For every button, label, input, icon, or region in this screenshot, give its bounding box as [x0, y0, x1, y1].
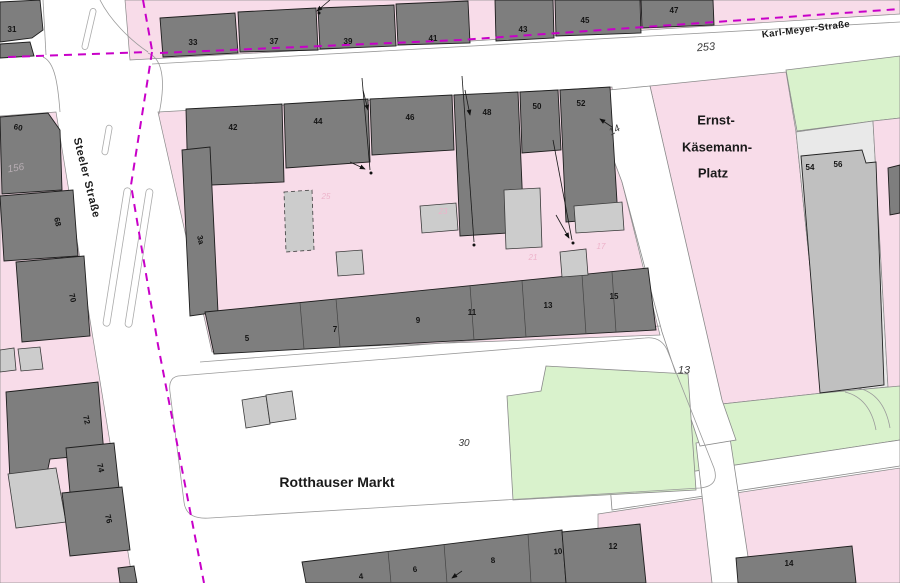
curb-junction-right [148, 53, 162, 114]
building-light-west [8, 468, 66, 528]
label-bld-39: 39 [344, 38, 353, 46]
label-bld-13: 13 [544, 302, 553, 310]
label-bld-52: 52 [577, 100, 586, 108]
garage [336, 250, 364, 276]
building-12 [562, 524, 646, 583]
building-76 [62, 487, 130, 556]
garage [504, 188, 542, 249]
building-50 [520, 90, 561, 153]
small-building [0, 348, 16, 372]
label-bld-8: 8 [490, 557, 495, 565]
map-canvas [0, 0, 900, 583]
label-bld-45: 45 [581, 17, 590, 25]
label-parcel-30: 30 [458, 439, 469, 449]
label-bld-5: 5 [245, 335, 249, 343]
label-bld-33: 33 [189, 39, 198, 47]
building-70 [16, 256, 90, 342]
label-bld-60: 60 [13, 123, 23, 133]
label-bld-41: 41 [429, 35, 438, 43]
small-building [18, 347, 43, 371]
label-bld-37: 37 [270, 38, 279, 46]
building-east-edge [888, 165, 900, 215]
lane-marking [103, 187, 132, 326]
curb-junction-left [43, 57, 60, 112]
label-faint-23: 23 [439, 208, 448, 216]
garage [284, 190, 314, 252]
building-60 [0, 113, 62, 194]
label-bld-72: 72 [81, 415, 91, 426]
label-bld-54: 54 [806, 164, 815, 172]
label-ernst-line2: Käsemann- [682, 141, 752, 154]
label-bld-47: 47 [670, 7, 679, 15]
label-bld-50: 50 [533, 103, 542, 111]
garage [574, 202, 624, 233]
shed [242, 396, 270, 428]
building-31 [0, 0, 43, 42]
curb-steeler-west-top [43, 0, 46, 55]
label-bld-46: 46 [406, 114, 415, 122]
label-bld-9: 9 [416, 317, 420, 325]
label-bld-44: 44 [314, 118, 323, 126]
building-33 [160, 13, 238, 57]
cadastral-map: Steeler StraßeKarl-Meyer-StraßeErnst-Käs… [0, 0, 900, 583]
label-ernst-line1: Ernst- [697, 114, 735, 127]
building-44 [284, 99, 370, 168]
label-parcel-13: 13 [678, 366, 690, 377]
label-bld-7: 7 [333, 326, 337, 334]
label-bld-42: 42 [229, 124, 238, 132]
label-faint-25: 25 [322, 193, 331, 201]
label-bld-3a: 3a [195, 235, 205, 246]
lane-marking [125, 188, 154, 327]
label-bld-76: 76 [103, 514, 113, 525]
lane-marking [81, 8, 96, 50]
green-market [507, 366, 696, 500]
label-bld-74: 74 [95, 463, 105, 474]
label-ernst-line3: Platz [698, 167, 728, 180]
building-row-4-10 [302, 530, 566, 583]
survey-point [473, 244, 476, 247]
garage [560, 249, 588, 277]
label-bld-68: 68 [52, 217, 62, 228]
lane-marking [101, 125, 112, 156]
label-faint-17: 17 [597, 243, 606, 251]
building-46 [370, 95, 454, 155]
label-faint-21: 21 [529, 254, 538, 262]
label-bld-10: 10 [553, 548, 563, 557]
building-68 [0, 190, 78, 261]
label-bld-43: 43 [519, 26, 528, 34]
label-bld-11: 11 [468, 309, 476, 317]
survey-point [370, 172, 373, 175]
label-bld-31: 31 [8, 26, 17, 34]
building-52 [560, 87, 618, 222]
label-parcel-253: 253 [696, 42, 715, 55]
label-bld-14b: 14 [785, 560, 794, 568]
label-bld-4: 4 [358, 573, 363, 581]
label-bld-12: 12 [609, 543, 618, 551]
shed [266, 391, 296, 423]
label-bld-48: 48 [483, 109, 492, 117]
survey-point [318, 12, 321, 15]
label-bld-56: 56 [834, 161, 843, 169]
survey-point [572, 242, 575, 245]
label-bld-6: 6 [412, 566, 417, 574]
label-rotthauser-markt: Rotthauser Markt [279, 475, 394, 489]
building-west-bottom [118, 566, 137, 583]
building-74 [66, 443, 119, 493]
label-bld-70: 70 [67, 293, 77, 304]
label-bld-15: 15 [610, 293, 619, 301]
